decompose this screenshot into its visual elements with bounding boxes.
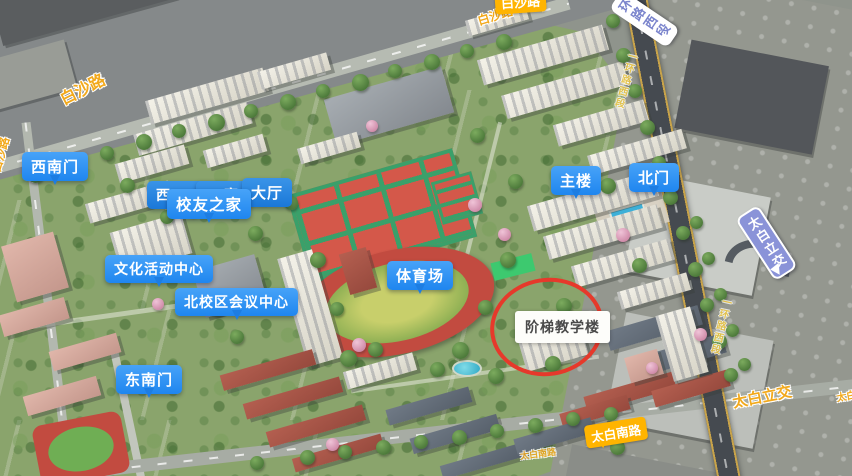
- tree: [100, 146, 114, 160]
- tree: [368, 342, 383, 357]
- tree: [424, 54, 440, 70]
- tree: [452, 342, 469, 359]
- building: [0, 297, 70, 337]
- tree: [280, 94, 296, 110]
- poi-alumni-home[interactable]: 校友之家: [167, 189, 251, 219]
- building: [324, 66, 455, 146]
- blossom-tree: [326, 438, 339, 451]
- building: [553, 99, 649, 146]
- tree: [120, 178, 135, 193]
- tree: [340, 350, 357, 367]
- poi-stadium[interactable]: 体育场: [387, 261, 453, 290]
- tree: [330, 302, 344, 316]
- poi-cultural-activity-center[interactable]: 文化活动中心: [105, 255, 213, 283]
- tree: [604, 407, 618, 421]
- tree: [338, 445, 352, 459]
- blossom-tree: [498, 228, 511, 241]
- tree: [248, 226, 263, 241]
- tree: [726, 324, 739, 337]
- tree: [470, 128, 485, 143]
- tree: [230, 330, 244, 344]
- tree: [724, 368, 738, 382]
- tree: [250, 456, 264, 470]
- building: [49, 333, 122, 372]
- building: [23, 376, 102, 416]
- blossom-tree: [616, 228, 630, 242]
- tree: [663, 190, 678, 205]
- building: [440, 442, 527, 476]
- tree: [606, 14, 620, 28]
- tree: [478, 300, 493, 315]
- tree: [702, 252, 715, 265]
- tree: [632, 258, 647, 273]
- tree: [690, 216, 703, 229]
- tree: [640, 120, 655, 135]
- tree: [688, 262, 703, 277]
- tree: [700, 298, 714, 312]
- tree: [500, 252, 516, 268]
- building: [339, 247, 377, 295]
- poi-north-campus-conference-center[interactable]: 北校区会议中心: [175, 288, 298, 316]
- tree: [508, 174, 523, 189]
- poi-north-gate[interactable]: 北门: [629, 163, 679, 192]
- building: [617, 272, 691, 309]
- building: [1, 232, 69, 303]
- campus-3d-map[interactable]: 白沙路 白沙路 白沙路 白沙路 太白南路 太白南路 太白立交 太白立交 一环路西…: [0, 0, 852, 476]
- building: [385, 386, 472, 425]
- tree: [388, 64, 402, 78]
- building: [297, 132, 361, 164]
- poi-stepped-teaching-building[interactable]: 阶梯教学楼: [515, 311, 610, 343]
- tree: [490, 424, 504, 438]
- poi-southeast-gate[interactable]: 东南门: [116, 365, 182, 394]
- tree: [316, 84, 330, 98]
- tree: [676, 226, 690, 240]
- tree: [208, 114, 225, 131]
- tree: [430, 362, 445, 377]
- tree: [414, 435, 428, 449]
- blossom-tree: [694, 328, 707, 341]
- tree: [600, 178, 616, 194]
- tree: [460, 44, 474, 58]
- tree: [376, 440, 391, 455]
- tree: [352, 74, 369, 91]
- poi-main-building[interactable]: 主楼: [551, 166, 601, 195]
- tree: [300, 450, 315, 465]
- tree: [528, 418, 543, 433]
- tree: [738, 358, 751, 371]
- building: [220, 349, 317, 391]
- blossom-tree: [646, 362, 658, 374]
- decor-layer: [0, 0, 852, 476]
- tree: [244, 104, 258, 118]
- blossom-tree: [366, 120, 378, 132]
- building: [203, 134, 268, 168]
- tree: [488, 368, 504, 384]
- tree: [496, 34, 512, 50]
- tree: [566, 412, 580, 426]
- blossom-tree: [468, 198, 482, 212]
- tree: [310, 252, 326, 268]
- tree: [172, 124, 186, 138]
- poi-southwest-gate[interactable]: 西南门: [22, 152, 88, 181]
- tree: [452, 430, 467, 445]
- blossom-tree: [152, 298, 164, 310]
- tree: [136, 134, 152, 150]
- blossom-tree: [352, 338, 366, 352]
